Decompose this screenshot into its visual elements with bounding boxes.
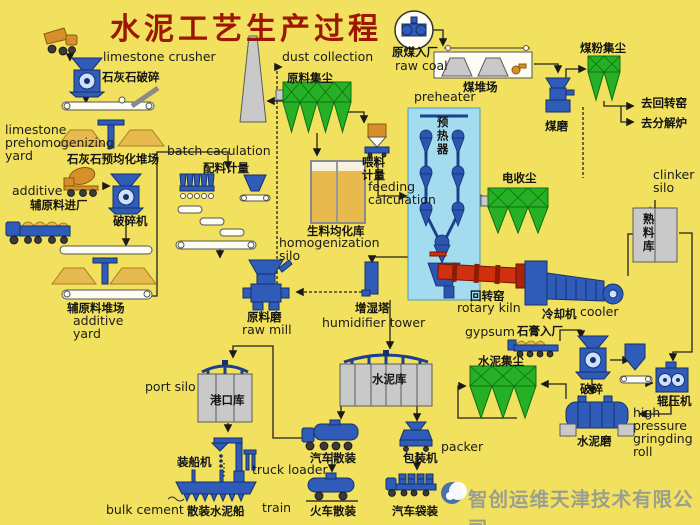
coal-dust-filter-icon — [588, 56, 620, 102]
label-truck-bulk-zh: 汽车散装 — [310, 452, 356, 465]
label-gypsum-en: gypsum — [465, 325, 515, 338]
label-limestone-yard-zh: 石灰石预均化堆场 — [67, 153, 159, 166]
ship-loader-icon — [208, 430, 258, 474]
label-bulk-cement-en: bulk cement — [106, 503, 184, 516]
homogenization-tank — [310, 160, 366, 224]
label-port-silo-en: port silo — [145, 380, 196, 393]
label-raw-coal-zh: 原煤入厂 — [392, 46, 438, 59]
label-roller-press-en: high pressure gringding roll — [633, 406, 697, 459]
label-humidifier-zh: 增湿塔 — [355, 302, 390, 315]
label-port-silo-zh: 港口库 — [210, 394, 245, 407]
humidifier-icon — [362, 262, 382, 302]
label-to-rotary-kiln-zh: 去回转窑 — [641, 97, 687, 110]
company-logo-icon — [438, 477, 470, 509]
gypsum-crusher-icon — [574, 336, 612, 382]
cooler-icon — [520, 255, 632, 307]
label-additive-yard-en: additive yard — [73, 314, 137, 340]
label-rotary-kiln-en: rotary kiln — [457, 301, 521, 314]
additive-conveyor-bottom-icon — [62, 288, 156, 300]
label-cement-dust-zh: 水泥集尘 — [478, 355, 524, 368]
coal-mill-icon — [540, 74, 576, 118]
label-additive-in-zh: 辅原料进厂 — [30, 199, 88, 212]
packer-icon — [398, 422, 436, 454]
label-train-bulk-zh: 火车散装 — [310, 505, 356, 518]
label-humidifier-en: humidifier tower — [322, 316, 425, 329]
additive-yard-icon — [52, 258, 160, 286]
additive-crusher-icon — [108, 174, 144, 216]
label-coal-dust-zh: 煤粉集尘 — [580, 42, 626, 55]
raw-dust-collector-icon — [283, 82, 351, 134]
feeder-icon — [364, 124, 390, 158]
label-gypsum-zh: 石膏入厂 — [517, 325, 563, 338]
ship-icon — [172, 468, 264, 508]
label-raw-mill-en: raw mill — [242, 323, 292, 336]
coal-crusher-circle-icon — [394, 10, 434, 50]
label-packer-en: packer — [441, 440, 483, 453]
label-preheater-zh: 预热器 — [436, 116, 449, 157]
label-coal-mill-zh: 煤磨 — [545, 120, 568, 133]
label-feeding-en: feeding calculation — [368, 180, 452, 206]
surge-hopper-icon — [623, 344, 653, 386]
label-batch-calculation-en: batch caculation — [167, 144, 271, 157]
label-raw-coal-en: raw coal — [395, 59, 448, 72]
label-gypsum-crusher-zh: 破碎 — [580, 383, 603, 396]
label-packer-zh: 包装机 — [403, 452, 438, 465]
label-esp-zh: 电收尘 — [502, 172, 537, 185]
label-truck-bag-zh: 汽车袋装 — [392, 505, 438, 518]
label-batch-calculation-zh: 配料计量 — [203, 162, 249, 175]
label-preheater-en: preheater — [414, 90, 476, 103]
coal-yard-icon — [434, 48, 536, 80]
esp-icon — [488, 188, 548, 235]
page-title: 水泥工艺生产过程 — [110, 4, 382, 48]
label-limestone-crusher-en: limestone crusher — [103, 50, 216, 63]
bulk-truck-icon — [302, 418, 364, 454]
mixer-truck-icon — [62, 164, 104, 198]
bag-truck-icon — [386, 470, 442, 498]
label-dust-collection-zh: 原料集尘 — [287, 72, 333, 85]
diagram-canvas: 水泥工艺生产过程 limestone crusher 石灰石破碎 limesto… — [0, 0, 700, 525]
batch-conveyors-icon — [176, 200, 266, 252]
label-cooler-zh: 冷却机 — [542, 308, 577, 321]
label-dust-collection-en: dust collection — [282, 50, 373, 63]
label-cement-silo-zh: 水泥库 — [372, 373, 407, 386]
company-watermark: 智创运维天津技术有限公司 — [468, 483, 700, 525]
label-cement-mill-zh: 水泥磨 — [577, 435, 612, 448]
label-cooler-en: cooler — [580, 305, 618, 318]
chimney-icon — [240, 36, 268, 122]
label-clinker-silo-zh: 熟料库 — [642, 213, 655, 254]
label-additive-en: additive — [12, 184, 62, 197]
roller-press-icon — [652, 362, 692, 396]
raw-mill-icon — [243, 258, 293, 312]
clinker-silo-icon — [633, 200, 681, 264]
label-clinker-silo-en: clinker silo — [653, 168, 700, 194]
label-train-en: train — [262, 501, 291, 514]
flatbed-truck-icon — [4, 212, 76, 248]
label-ship-loader-zh: 装船机 — [177, 456, 212, 469]
port-silo-icon — [198, 360, 256, 424]
label-limestone-crusher-zh: 石灰石破碎 — [102, 71, 160, 84]
label-homogenization-en: homogenization silo — [279, 236, 391, 262]
label-additive-crusher-zh: 破碎机 — [113, 215, 148, 228]
label-feeding-zh: 喂料计量 — [362, 156, 388, 181]
label-bulk-ship-zh: 散装水泥船 — [187, 505, 245, 518]
label-to-calciner-zh: 去分解炉 — [641, 117, 687, 130]
additive-conveyor-top-icon — [60, 244, 156, 256]
limestone-conveyor-icon — [62, 88, 162, 116]
cement-dust-collector-icon — [470, 366, 538, 420]
dump-truck-icon — [42, 24, 82, 58]
